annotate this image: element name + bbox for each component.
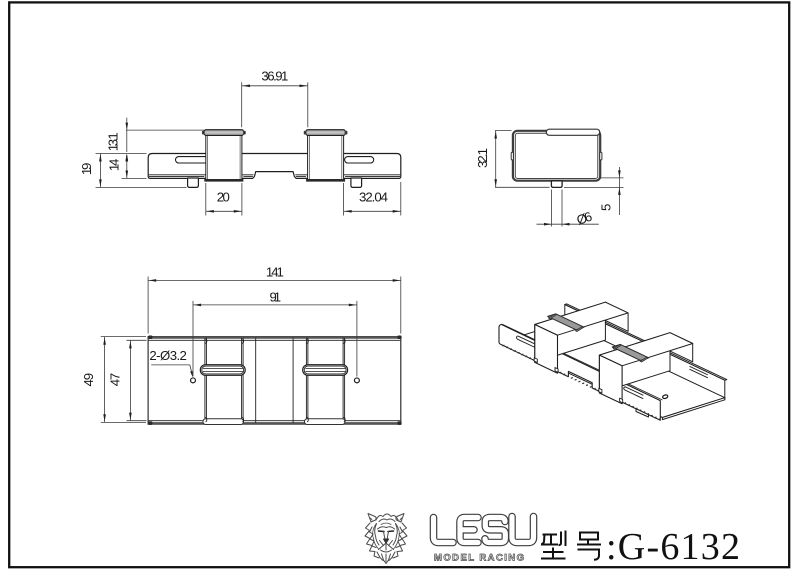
svg-text:36.91: 36.91 (261, 69, 288, 84)
svg-text:MODEL RACING: MODEL RACING (434, 553, 524, 564)
svg-text:47: 47 (107, 373, 122, 387)
svg-text:5: 5 (598, 204, 613, 211)
svg-text:Ø6: Ø6 (575, 209, 595, 228)
svg-text:32.04: 32.04 (359, 190, 388, 205)
svg-text:20: 20 (217, 190, 230, 205)
svg-text:19: 19 (79, 163, 94, 176)
svg-text:91: 91 (270, 290, 282, 305)
svg-text:13.1: 13.1 (105, 132, 120, 151)
svg-text:49: 49 (81, 373, 96, 387)
svg-text::G-6132: :G-6132 (606, 526, 740, 568)
svg-text:141: 141 (266, 264, 284, 279)
svg-text:2-Ø3.2: 2-Ø3.2 (149, 348, 187, 363)
svg-text:14: 14 (107, 159, 122, 172)
svg-text:32.1: 32.1 (475, 148, 490, 168)
